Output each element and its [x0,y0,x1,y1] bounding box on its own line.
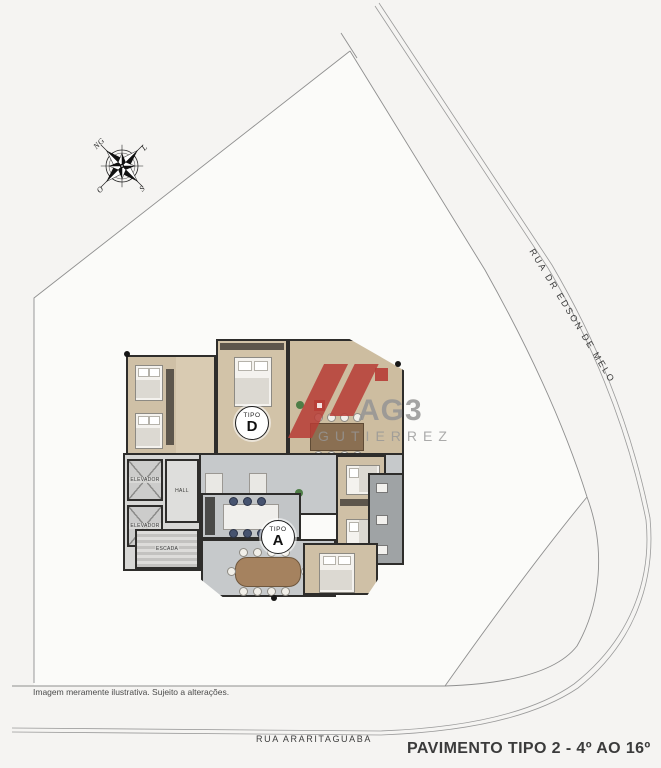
unit-d-letter: D [247,419,258,434]
floorplan: ELEVADOR ELEVADOR HALL ESCADA [123,333,404,603]
compass-rose-icon [80,124,165,209]
unit-badge-tipo-d: TIPO D [235,406,269,440]
hall-room: HALL [165,459,199,523]
circulation-core: ELEVADOR ELEVADOR HALL ESCADA [123,453,201,571]
bedroom-bottomright [303,543,378,595]
stairs-room: ESCADA [135,529,199,569]
bedroom-topleft-block [126,355,216,455]
elevator-shaft-top: ELEVADOR [127,459,163,501]
elevator-top-label: ELEVADOR [129,477,160,483]
street-label-bottom: RUA ARARITAGUABA [256,734,372,744]
disclaimer-text: Imagem meramente ilustrativa. Sujeito a … [33,687,229,697]
corner-dot [271,595,277,601]
corner-dot [395,361,401,367]
corner-dot [124,351,130,357]
hall-label: HALL [174,488,190,494]
unit-a-letter: A [273,533,284,548]
unit-badge-tipo-a: TIPO A [261,520,295,554]
terrace-topright [288,339,404,455]
plan-title: PAVIMENTO TIPO 2 - 4º AO 16º [407,740,651,758]
site-plan-page: { "compass": { "labels": { "north": "NG"… [0,0,661,768]
stairs-label: ESCADA [155,546,179,552]
